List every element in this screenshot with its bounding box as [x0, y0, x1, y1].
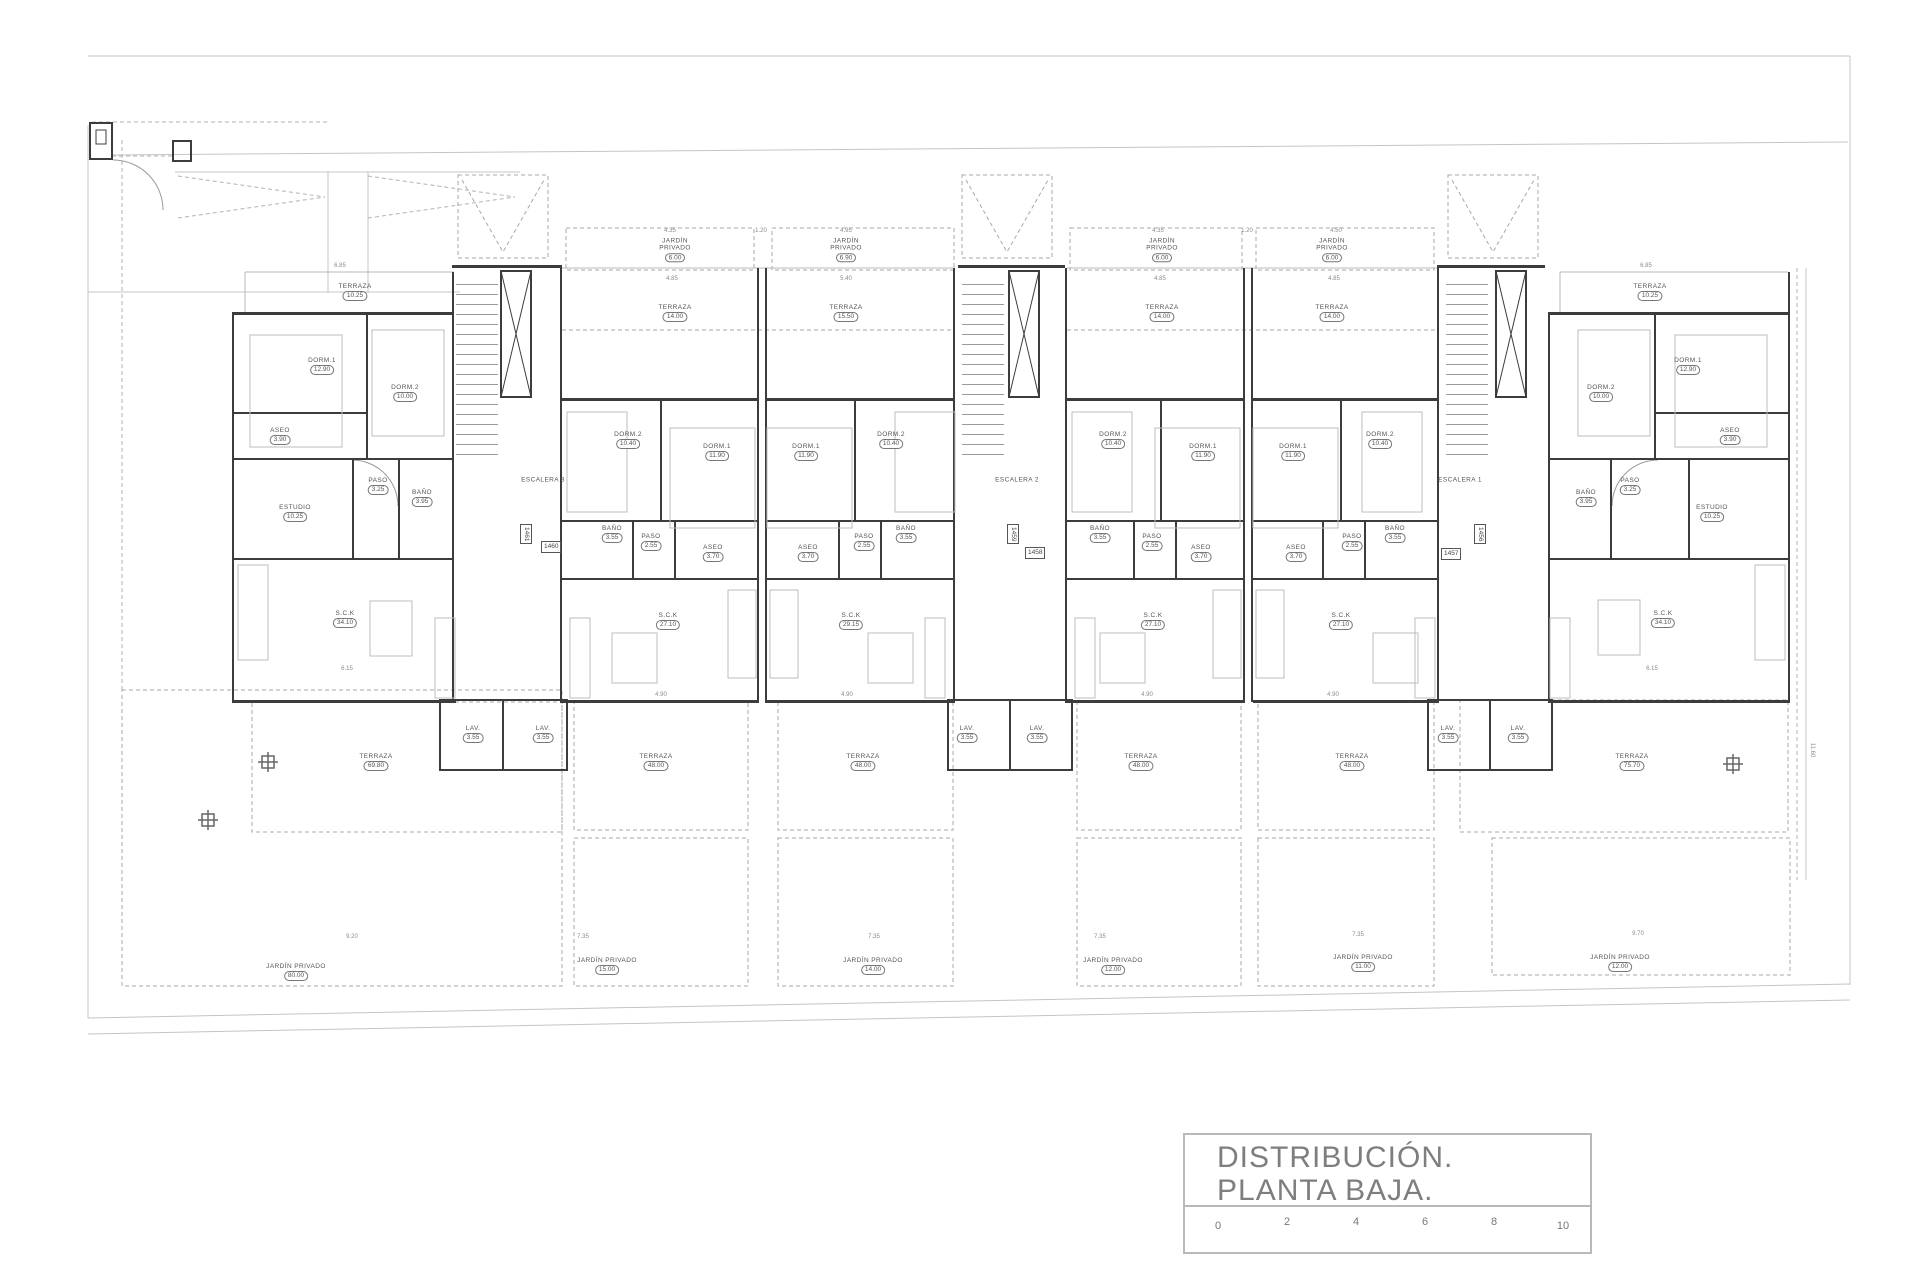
room-label: ASEO3.90 — [270, 427, 291, 445]
room-label: JARDÍN PRIVADO6.00 — [1143, 237, 1181, 262]
room-label: JARDÍN PRIVADO6.00 — [656, 237, 694, 262]
room-label: JARDÍN PRIVADO11.00 — [1333, 954, 1393, 972]
elevator-x — [501, 271, 1526, 397]
stair-label: ESCALERA 3 — [521, 477, 565, 484]
floor-plan-drawing — [0, 0, 1920, 1280]
room-label: TERRAZA48.00 — [1124, 753, 1157, 771]
room-label: JARDÍN PRIVADO6.00 — [1313, 237, 1351, 262]
dimension-text: 7.35 — [1352, 932, 1364, 938]
room-label: JARDÍN PRIVADO12.00 — [1590, 954, 1650, 972]
dimension-text: 6.15 — [341, 666, 353, 672]
unit-number-tag: 1456 — [1474, 524, 1486, 544]
floor-plan-page: TERRAZA10.25 DORM.112.90 DORM.210.00 ASE… — [0, 0, 1920, 1280]
site-dashed-lines — [92, 122, 1797, 880]
room-label: JARDÍN PRIVADO15.00 — [577, 957, 637, 975]
room-label: LAV.3.55 — [1508, 725, 1529, 743]
room-label: JARDÍN PRIVADO12.00 — [1083, 957, 1143, 975]
unit-number-tag: 1458 — [1025, 547, 1045, 559]
room-label: JARDÍN PRIVADO80.00 — [266, 963, 326, 981]
dimension-text: 1.20 — [755, 228, 767, 234]
scale-tick-label: 2 — [1284, 1216, 1290, 1228]
room-label: S.C.K34.10 — [1651, 610, 1675, 628]
room-label: S.C.K27.10 — [656, 612, 680, 630]
drawing-title-line2: PLANTA BAJA. — [1217, 1174, 1453, 1207]
room-label: TERRAZA48.00 — [1335, 753, 1368, 771]
unit-number-tag: 1460 — [541, 541, 561, 553]
room-label: PASO2.55 — [1142, 533, 1163, 551]
dimension-text: 7.35 — [1094, 934, 1106, 940]
room-label: TERRAZA10.25 — [1633, 283, 1666, 301]
dimension-text: 6.85 — [334, 263, 346, 269]
dimension-text: 4.85 — [1328, 276, 1340, 282]
scale-tick-label: 8 — [1491, 1216, 1497, 1228]
room-label: BAÑO3.95 — [412, 489, 433, 507]
room-label: TERRAZA48.00 — [846, 753, 879, 771]
room-label: S.C.K29.15 — [839, 612, 863, 630]
dimension-text: 6.15 — [1646, 666, 1658, 672]
room-label: BAÑO3.95 — [1576, 489, 1597, 507]
dimension-text: 5.40 — [840, 276, 852, 282]
room-label: BAÑO3.55 — [602, 525, 623, 543]
room-label: ASEO3.70 — [1191, 544, 1212, 562]
pergola-columns — [198, 752, 1743, 830]
dimension-text: 4.35 — [1152, 228, 1164, 234]
room-label: DORM.210.40 — [614, 431, 642, 449]
room-label: TERRAZA48.00 — [639, 753, 672, 771]
stair-label: ESCALERA 1 — [1438, 477, 1482, 484]
unit-number-tag: 1461 — [520, 524, 532, 544]
room-label: PASO2.55 — [854, 533, 875, 551]
title-block: DISTRIBUCIÓN. PLANTA BAJA. — [1183, 1133, 1592, 1254]
stair-treads — [962, 284, 1004, 456]
stair-treads — [1446, 284, 1488, 456]
room-label: DORM.210.40 — [1099, 431, 1127, 449]
drawing-title: DISTRIBUCIÓN. PLANTA BAJA. — [1217, 1141, 1453, 1207]
room-label: S.C.K27.10 — [1141, 612, 1165, 630]
room-label: TERRAZA14.00 — [1145, 304, 1178, 322]
room-label: TERRAZA75.70 — [1615, 753, 1648, 771]
room-label: PASO3.25 — [368, 477, 389, 495]
room-label: DORM.111.90 — [1279, 443, 1307, 461]
room-label: DORM.210.00 — [1587, 384, 1615, 402]
room-label: DORM.111.90 — [792, 443, 820, 461]
drawing-title-line1: DISTRIBUCIÓN. — [1217, 1141, 1453, 1174]
room-label: LAV.3.55 — [1438, 725, 1459, 743]
room-label: ASEO3.70 — [1286, 544, 1307, 562]
stair-treads — [456, 284, 498, 456]
dimension-text: 7.35 — [868, 934, 880, 940]
room-label: S.C.K34.10 — [333, 610, 357, 628]
dimension-text: 4.90 — [841, 692, 853, 698]
scale-tick-label: 10 — [1557, 1220, 1569, 1232]
dimension-text: 9.70 — [1632, 931, 1644, 937]
room-label: DORM.210.40 — [1366, 431, 1394, 449]
dimension-text: 4.90 — [1141, 692, 1153, 698]
dimension-text: 9.20 — [346, 934, 358, 940]
unit-number-tag: 1459 — [1007, 524, 1019, 544]
dimension-text: 4.90 — [655, 692, 667, 698]
room-label: DORM.111.90 — [1189, 443, 1217, 461]
stair-label: ESCALERA 2 — [995, 477, 1039, 484]
room-label: ASEO3.70 — [703, 544, 724, 562]
room-label: DORM.112.90 — [1674, 357, 1702, 375]
dimension-text: 4.85 — [1154, 276, 1166, 282]
dimension-text: 11.60 — [1809, 743, 1815, 758]
scale-tick-label: 0 — [1215, 1220, 1221, 1232]
dimension-text: 4.85 — [666, 276, 678, 282]
room-label: TERRAZA69.80 — [359, 753, 392, 771]
room-label: TERRAZA10.25 — [338, 283, 371, 301]
room-label: BAÑO3.55 — [896, 525, 917, 543]
room-label: LAV.3.55 — [957, 725, 978, 743]
entrance-gate — [90, 123, 191, 161]
room-label: ASEO3.90 — [1720, 427, 1741, 445]
room-label: LAV.3.55 — [1027, 725, 1048, 743]
dimension-text: 4.50 — [1330, 228, 1342, 234]
room-label: PASO2.55 — [1342, 533, 1363, 551]
room-label: DORM.111.90 — [703, 443, 731, 461]
room-label: TERRAZA15.50 — [829, 304, 862, 322]
dimension-text: 4.95 — [840, 228, 852, 234]
unit-number-tag: 1457 — [1441, 548, 1461, 560]
dimension-text: 4.90 — [1327, 692, 1339, 698]
room-label: DORM.210.00 — [391, 384, 419, 402]
room-label: LAV.3.55 — [533, 725, 554, 743]
scale-tick-label: 4 — [1353, 1216, 1359, 1228]
dimension-text: 7.35 — [577, 934, 589, 940]
dimension-text: 6.85 — [1640, 263, 1652, 269]
room-label: BAÑO3.55 — [1385, 525, 1406, 543]
room-label: LAV.3.55 — [463, 725, 484, 743]
room-label: ESTUDIO10.25 — [279, 504, 311, 522]
room-label: TERRAZA14.00 — [658, 304, 691, 322]
garden-terrace-boundaries — [122, 175, 1790, 986]
room-label: ESTUDIO10.25 — [1696, 504, 1728, 522]
door-arcs — [113, 160, 1658, 506]
room-label: DORM.112.90 — [308, 357, 336, 375]
room-label: JARDÍN PRIVADO14.00 — [843, 957, 903, 975]
dimension-text: 1.20 — [1241, 228, 1253, 234]
room-label: PASO3.25 — [1620, 477, 1641, 495]
scale-tick-label: 6 — [1422, 1216, 1428, 1228]
dimension-text: 4.35 — [664, 228, 676, 234]
room-label: PASO2.55 — [641, 533, 662, 551]
room-label: TERRAZA14.00 — [1315, 304, 1348, 322]
room-label: JARDÍN PRIVADO6.90 — [827, 237, 865, 262]
room-label: DORM.210.40 — [877, 431, 905, 449]
room-label: ASEO3.70 — [798, 544, 819, 562]
room-label: S.C.K27.10 — [1329, 612, 1353, 630]
room-label: BAÑO3.55 — [1090, 525, 1111, 543]
